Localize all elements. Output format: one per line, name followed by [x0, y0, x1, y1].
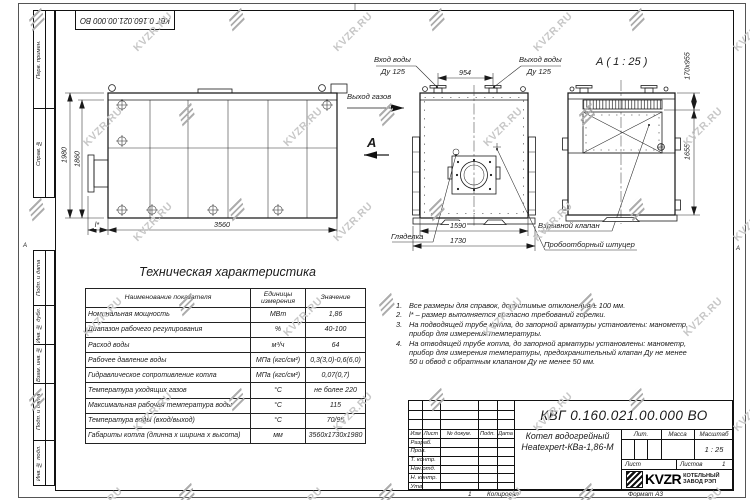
- label-water-inlet: Вход воды: [374, 55, 411, 64]
- stamp-cell: Подп. и дата: [34, 251, 54, 306]
- table-cell: Диапазон рабочего регулирования: [86, 323, 251, 338]
- table-cell: Максимальная рабочая температура воды: [86, 398, 251, 413]
- sig-header: Лист: [422, 431, 440, 437]
- table-cell: Температура уходящих газов: [86, 383, 251, 398]
- tb-vline: [478, 401, 479, 491]
- drawing-sheet: KVZR.RUKVZR.RUKVZR.RUKVZR.RUKVZR.RUKVZR.…: [0, 0, 750, 500]
- table-row: Максимальная рабочая температура воды°С1…: [86, 398, 366, 413]
- label-sight-glass: Гляделка: [391, 232, 423, 241]
- note-number: 1.: [396, 301, 409, 310]
- sheets-label: Листов: [680, 461, 703, 468]
- tb-vline: [497, 401, 498, 491]
- stamp-label: Подп. и дата: [34, 384, 44, 440]
- lit-header: Лит.: [621, 431, 661, 438]
- table-cell: 0,3(3,0)-0,6(6,0): [306, 353, 366, 368]
- scale-header: Масштаб: [694, 431, 734, 438]
- sig-header: Изм: [409, 431, 422, 437]
- dim-rear-height: 1655: [683, 143, 692, 161]
- product-name-line2: Heatexpert-КВа-1,86-М: [516, 442, 619, 453]
- dim-height-inner: 1860: [73, 150, 82, 168]
- sig-row-label: Утв.: [411, 484, 424, 490]
- sheets-value: 1: [722, 461, 725, 468]
- product-name: Котел водогрейный Heatexpert-КВа-1,86-М: [516, 431, 619, 453]
- kvzr-logo-icon: [626, 471, 643, 488]
- sig-row-label: Пров.: [411, 448, 427, 454]
- table-cell: м³/ч: [251, 338, 306, 353]
- tb-hline: [409, 419, 514, 420]
- dim-nozzle-spacing: 954: [458, 68, 472, 77]
- table-row: Габариты котла (длинна х ширина х высота…: [86, 428, 366, 443]
- table-cell: МПа (кгс/см²): [251, 353, 306, 368]
- tb-vline: [440, 401, 441, 491]
- stamp-divider: [45, 441, 46, 485]
- sig-header: № докум.: [440, 431, 478, 437]
- dim-l-star: l*: [94, 220, 100, 229]
- table-cell: 64: [306, 338, 366, 353]
- note-text: На отводящей трубе котла, до запорной ар…: [409, 339, 690, 367]
- table-cell: %: [251, 323, 306, 338]
- table-row: Температура воды (вход/выход)°С70/95: [86, 413, 366, 428]
- note-number: 4.: [396, 339, 409, 367]
- note-item: 4.На отводящей трубе котла, до запорной …: [396, 339, 690, 367]
- table-body: Номинальная мощностьМВт1,86Диапазон рабо…: [86, 308, 366, 444]
- table-cell: Рабочее давление воды: [86, 353, 251, 368]
- sig-header: Дата: [497, 431, 514, 437]
- table-title: Техническая характеристика: [100, 265, 355, 279]
- table-cell: МВт: [251, 308, 306, 323]
- sig-row-label: Н. контр.: [411, 475, 438, 481]
- doc-number: КВГ 0.160.021.00.000 ВО: [514, 401, 734, 429]
- stamp-label: Подп. и дата: [34, 251, 44, 305]
- table-cell: Гидравлическое сопротивление котла: [86, 368, 251, 383]
- footer-copied: Копировал: [487, 491, 519, 498]
- table-header-row: Наименование показателяЕдиницы измерения…: [86, 289, 366, 308]
- table-cell: Расход воды: [86, 338, 251, 353]
- table-cell: °С: [251, 398, 306, 413]
- note-text: l* – размер выполняется согласно требова…: [409, 310, 690, 319]
- left-stamp-column-top: Перв. примен.Справ. №: [33, 10, 55, 198]
- table-header-cell: Наименование показателя: [86, 289, 251, 308]
- company-name: КОТЕЛЬНЫЙ ЗАВОД РЭП: [683, 473, 719, 485]
- tb-hline: [409, 482, 514, 483]
- stamp-label: Инв. № дубл.: [34, 306, 44, 344]
- label-water-outlet: Выход воды: [519, 55, 562, 64]
- top-docnumber-text: КВГ 0.160.021.00.000 ВО: [80, 16, 170, 25]
- label-water-inlet-dn: Ду 125: [381, 67, 405, 76]
- stamp-cell: Инв. № подл.: [34, 441, 54, 485]
- label-view-arrow: А: [367, 135, 376, 150]
- sig-header: Подп.: [478, 431, 497, 437]
- sig-row-label: Нач.отд.: [411, 466, 436, 472]
- stamp-divider: [45, 345, 46, 383]
- stamp-cell: Справ. №: [34, 109, 54, 197]
- table-cell: °С: [251, 383, 306, 398]
- tb-hline: [409, 410, 514, 411]
- table-row: Диапазон рабочего регулирования%40-100: [86, 323, 366, 338]
- rear-view-title: А ( 1 : 25 ): [596, 56, 647, 68]
- sig-row-label: Т. контр.: [411, 457, 436, 463]
- product-name-line1: Котел водогрейный: [516, 431, 619, 442]
- table-cell: мм: [251, 428, 306, 443]
- kvzr-logo-text: KVZR: [645, 471, 681, 487]
- note-text: На подводящей трубе котла, до запорной а…: [409, 320, 690, 339]
- dim-height-outer: 1980: [60, 146, 69, 164]
- title-block: КВГ 0.160.021.00.000 ВО Котел водогрейны…: [408, 400, 733, 490]
- left-stamp-column-bottom: Подп. и датаИнв. № дубл.Взам. инв. №Подп…: [33, 250, 55, 486]
- table-cell: Габариты котла (длинна х ширина х высота…: [86, 428, 251, 443]
- stamp-divider: [45, 251, 46, 305]
- table-cell: Температура воды (вход/выход): [86, 413, 251, 428]
- table-cell: Номинальная мощность: [86, 308, 251, 323]
- footer-copy-num: 1: [468, 491, 472, 498]
- note-item: 3.На подводящей трубе котла, до запорной…: [396, 320, 690, 339]
- table-cell: 40-100: [306, 323, 366, 338]
- label-sampling-fitting: Пробоотборный штуцер: [544, 240, 635, 249]
- table-cell: 1,86: [306, 308, 366, 323]
- stamp-label: Справ. №: [34, 109, 44, 197]
- label-explosion-valve: Взрывной клапан: [538, 221, 600, 230]
- dim-width-outer: 1730: [449, 236, 467, 245]
- company-logo: KVZR КОТЕЛЬНЫЙ ЗАВОД РЭП: [626, 469, 732, 489]
- note-number: 2.: [396, 310, 409, 319]
- sheet-label: Лист: [625, 461, 641, 468]
- table-cell: не более 220: [306, 383, 366, 398]
- stamp-label: Перв. примен.: [34, 11, 44, 108]
- table-row: Рабочее давление водыМПа (кгс/см²)0,3(3,…: [86, 353, 366, 368]
- stamp-divider: [45, 306, 46, 344]
- table-header-cell: Единицы измерения: [251, 289, 306, 308]
- note-number: 3.: [396, 320, 409, 339]
- table-row: Температура уходящих газов°Сне более 220: [86, 383, 366, 398]
- scale-value: 1 : 25: [694, 445, 734, 454]
- zone-letter-right: А: [736, 246, 740, 252]
- table-row: Номинальная мощностьМВт1,86: [86, 308, 366, 323]
- table-row: Расход водым³/ч64: [86, 338, 366, 353]
- stamp-label: Инв. № подл.: [34, 441, 44, 485]
- stamp-divider: [45, 11, 46, 108]
- stamp-cell: Инв. № дубл.: [34, 306, 54, 345]
- stamp-label: Взам. инв. №: [34, 345, 44, 383]
- note-item: 2.l* – размер выполняется согласно требо…: [396, 310, 690, 319]
- tech-table: Наименование показателяЕдиницы измерения…: [85, 288, 366, 444]
- table-cell: 3560х1730х1980: [306, 428, 366, 443]
- stamp-cell: Перв. примен.: [34, 11, 54, 109]
- notes-block: 1.Все размеры для справок, допустимые от…: [396, 301, 690, 367]
- sig-row-label: Разраб.: [411, 440, 432, 446]
- stamp-cell: Подп. и дата: [34, 384, 54, 441]
- note-text: Все размеры для справок, допустимые откл…: [409, 301, 690, 310]
- table-cell: 0,07(0,7): [306, 368, 366, 383]
- dim-opening: 170х955: [683, 51, 692, 81]
- table-cell: МПа (кгс/см²): [251, 368, 306, 383]
- table-cell: 70/95: [306, 413, 366, 428]
- table-cell: °С: [251, 413, 306, 428]
- top-docnumber-stamp: КВГ 0.160.021.00.000 ВО: [75, 10, 175, 30]
- label-water-outlet-dn: Ду 125: [527, 67, 551, 76]
- dim-width-inner: 1590: [449, 221, 467, 230]
- table-cell: 115: [306, 398, 366, 413]
- stamp-cell: Взам. инв. №: [34, 345, 54, 384]
- stamp-divider: [45, 109, 46, 197]
- note-item: 1.Все размеры для справок, допустимые от…: [396, 301, 690, 310]
- stamp-divider: [45, 384, 46, 440]
- dim-length: 3560: [213, 220, 231, 229]
- table-header-cell: Значение: [306, 289, 366, 308]
- footer-format: Формат А3: [628, 491, 663, 498]
- zone-letter-left: А: [23, 243, 27, 249]
- label-gas-outlet: Выход газов: [347, 92, 391, 101]
- mass-header: Масса: [661, 431, 694, 438]
- table-row: Гидравлическое сопротивление котлаМПа (к…: [86, 368, 366, 383]
